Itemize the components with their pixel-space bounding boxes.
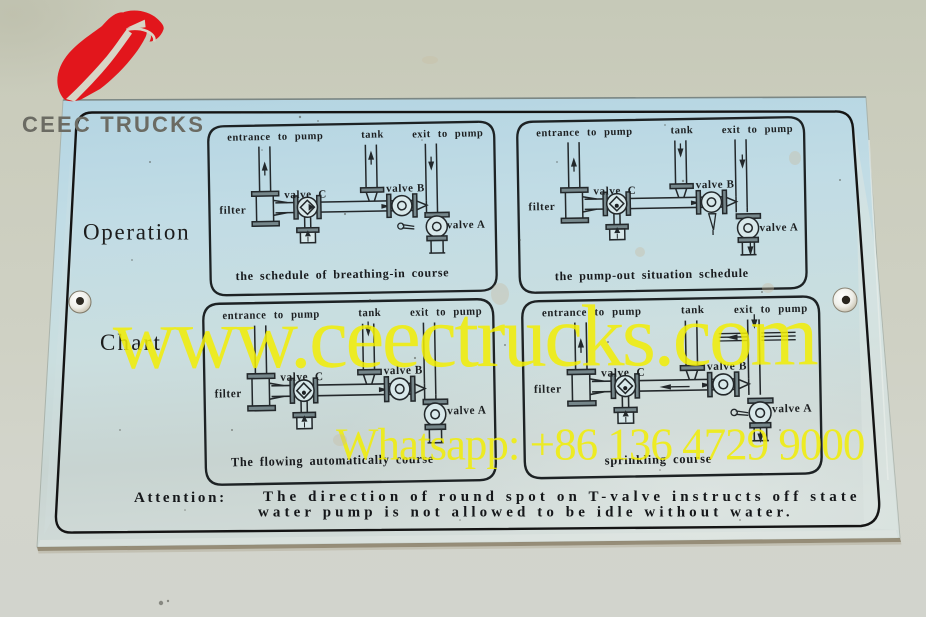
svg-text:valve A: valve A: [447, 219, 486, 232]
svg-text:valve A: valve A: [772, 403, 812, 416]
svg-text:valve A: valve A: [447, 404, 487, 417]
svg-text:Whatsapp: +86 136 4729 9000: Whatsapp: +86 136 4729 9000: [336, 420, 864, 470]
svg-text:Attention:: Attention:: [134, 490, 227, 506]
svg-text:water pump is not allowed to b: water pump is not allowed to be idle wit…: [258, 505, 794, 521]
svg-text:valve A: valve A: [760, 221, 799, 234]
svg-text:Operation: Operation: [83, 220, 190, 245]
svg-text:CEEC TRUCKS: CEEC TRUCKS: [22, 112, 205, 137]
svg-text:The direction of round spot on: The direction of round spot on T-valve i…: [263, 489, 861, 505]
svg-text:www.ceectrucks.com: www.ceectrucks.com: [113, 287, 819, 388]
